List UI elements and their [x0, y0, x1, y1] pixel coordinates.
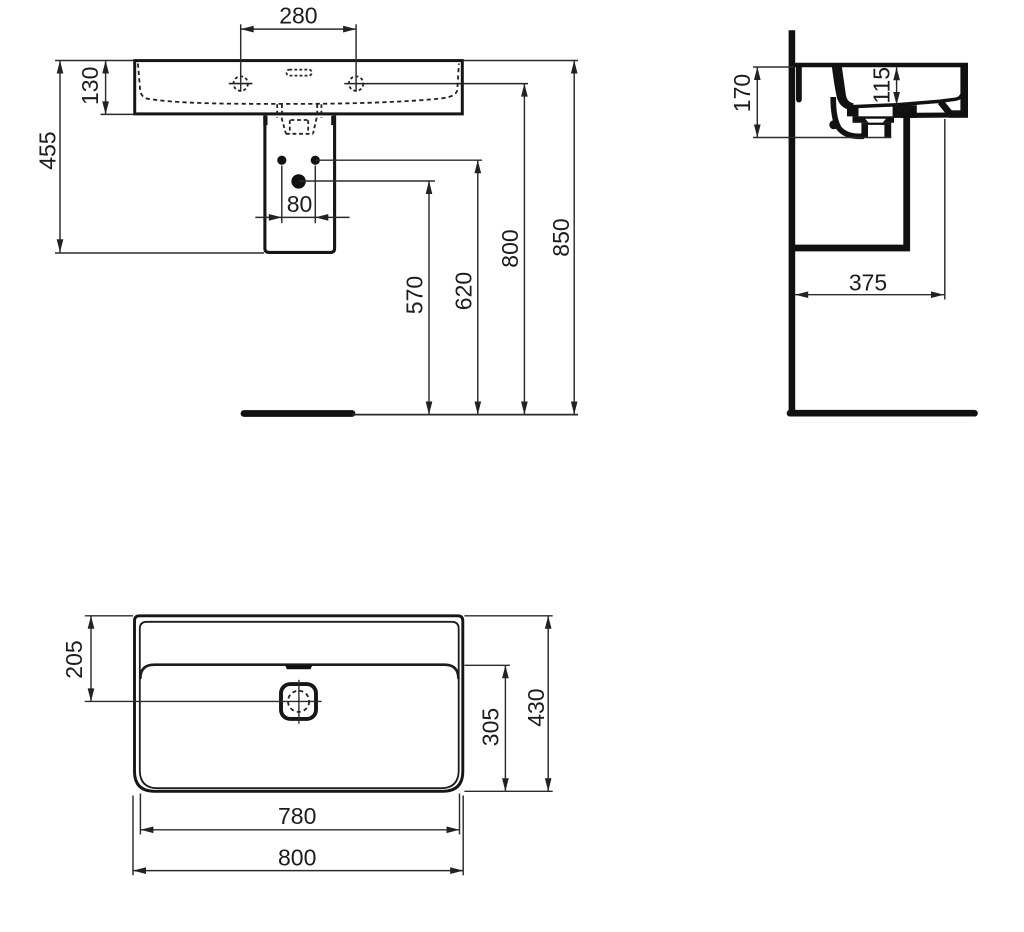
svg-text:280: 280 [279, 3, 317, 29]
svg-text:800: 800 [497, 229, 523, 267]
svg-text:620: 620 [451, 272, 477, 310]
svg-text:80: 80 [287, 191, 313, 217]
svg-text:780: 780 [278, 803, 316, 829]
svg-text:850: 850 [548, 218, 574, 256]
svg-text:455: 455 [35, 131, 61, 169]
svg-text:570: 570 [402, 276, 428, 314]
svg-text:800: 800 [278, 845, 316, 871]
svg-text:375: 375 [849, 270, 887, 296]
svg-text:170: 170 [729, 74, 755, 112]
svg-text:130: 130 [77, 67, 103, 105]
svg-text:305: 305 [478, 708, 504, 746]
svg-text:205: 205 [61, 640, 87, 678]
svg-text:115: 115 [869, 67, 895, 104]
svg-text:430: 430 [523, 688, 549, 726]
